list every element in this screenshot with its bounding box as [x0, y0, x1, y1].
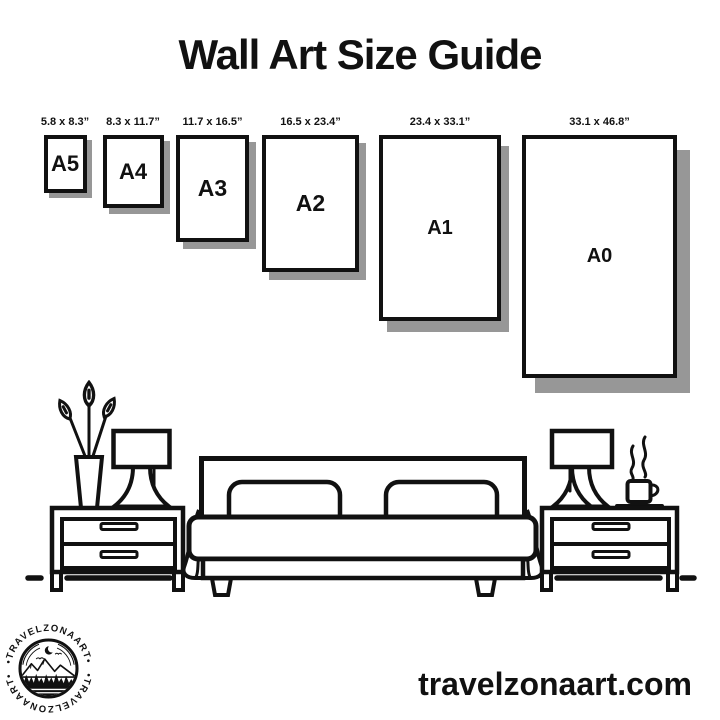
bed-base	[203, 559, 523, 578]
wall-art-size-guide-poster: Wall Art Size Guide 5.8 x 8.3” A5 8.3 x …	[0, 0, 720, 720]
size-name-label: A3	[198, 175, 227, 202]
table-lamp-right-icon	[552, 431, 612, 507]
size-dimensions-label: 16.5 x 23.4”	[280, 116, 341, 129]
mattress	[189, 517, 536, 559]
page-title: Wall Art Size Guide	[0, 31, 720, 79]
double-bed-icon	[183, 459, 542, 596]
brand-logo: •TRAVELZONAART• •TRAVELZONAART•	[1, 621, 96, 716]
size-card-a0: 33.1 x 46.8” A0	[492, 116, 707, 378]
bed-leg	[212, 579, 231, 596]
size-name-label: A2	[296, 190, 325, 217]
size-name-label: A4	[119, 159, 147, 185]
bedroom-illustration	[0, 380, 720, 605]
size-name-label: A1	[427, 217, 453, 240]
size-dimensions-label: 33.1 x 46.8”	[569, 116, 630, 129]
bed-leg	[476, 579, 495, 596]
flower-vase-icon	[56, 382, 117, 508]
website-url: travelzonaart.com	[400, 666, 710, 703]
paper-a0: A0	[522, 135, 677, 378]
paper-a2: A2	[262, 135, 359, 272]
coffee-cup-icon	[617, 437, 662, 506]
size-dimensions-label: 23.4 x 33.1”	[410, 116, 471, 129]
steam-icon	[631, 437, 646, 479]
paper-a1: A1	[379, 135, 501, 321]
table-lamp-left-icon	[114, 431, 170, 507]
size-name-label: A0	[587, 245, 613, 268]
